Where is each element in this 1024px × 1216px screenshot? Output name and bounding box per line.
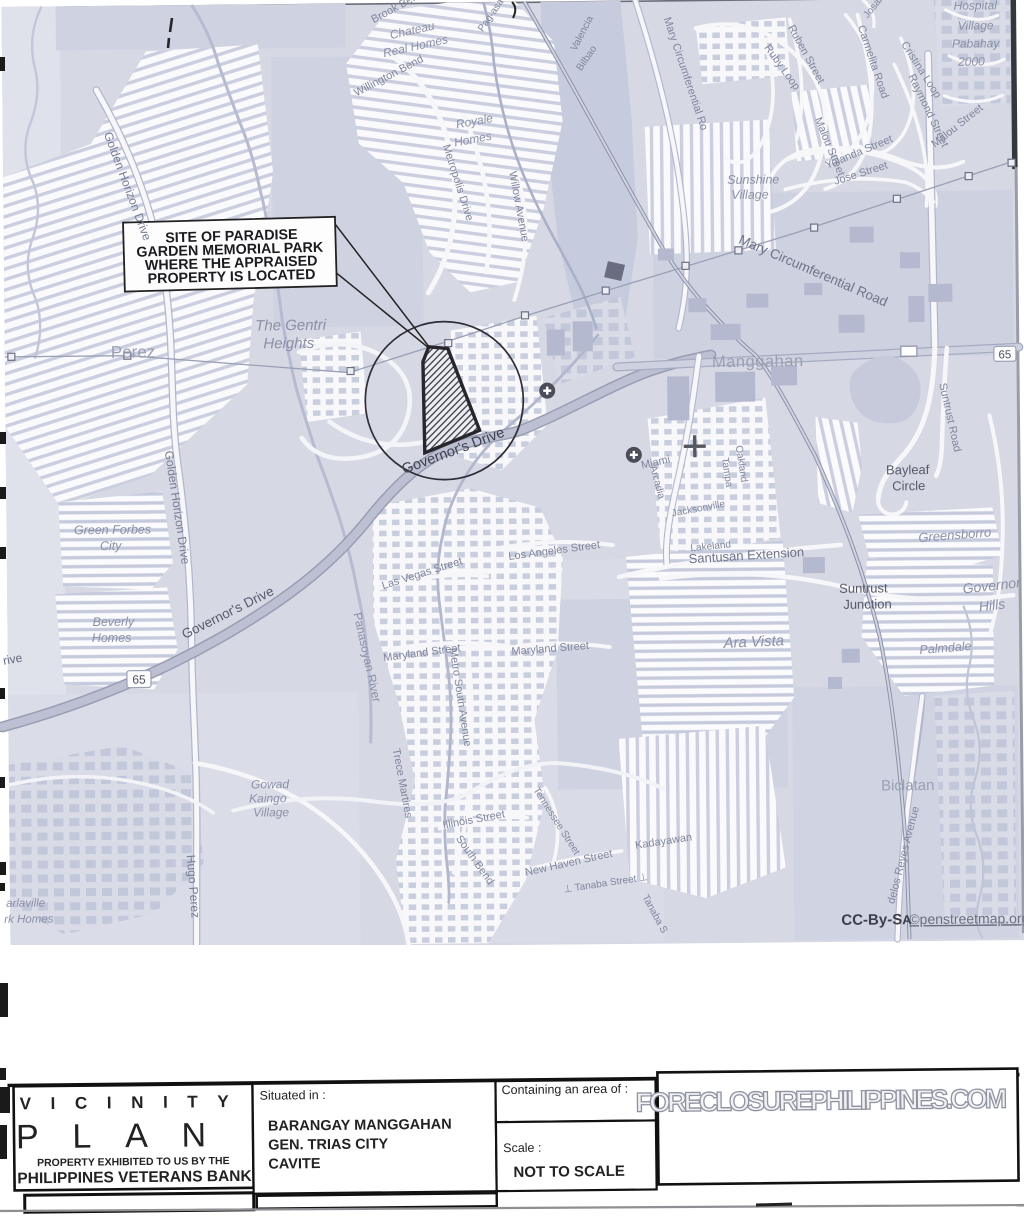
svg-text:Green Forbes: Green Forbes (74, 522, 151, 537)
svg-text:NOT TO SCALE: NOT TO SCALE (513, 1163, 625, 1181)
svg-text:Hospital: Hospital (953, 0, 997, 13)
svg-text:Homes: Homes (92, 631, 132, 645)
svg-text:Village: Village (731, 188, 768, 202)
svg-text:FORECLOSUREPHILIPPINES.COM: FORECLOSUREPHILIPPINES.COM (636, 1084, 1008, 1118)
svg-text:PROPERTY EXHIBITED TO US BY TH: PROPERTY EXHIBITED TO US BY THE (37, 1155, 230, 1169)
svg-text:65: 65 (132, 673, 146, 687)
svg-text:CAVITE: CAVITE (268, 1156, 321, 1173)
svg-text:Junction: Junction (843, 596, 892, 611)
svg-text:arlaville: arlaville (6, 898, 45, 910)
svg-text:Sunshine: Sunshine (727, 172, 779, 187)
svg-text:City: City (100, 539, 122, 553)
svg-text:Containing an area of :: Containing an area of : (501, 1082, 628, 1097)
svg-text:Circle: Circle (892, 478, 925, 493)
svg-text:Suntrust: Suntrust (839, 580, 888, 595)
svg-text:Situated in :: Situated in : (260, 1088, 326, 1103)
svg-text:Gowad: Gowad (251, 777, 289, 791)
svg-text:PHILIPPINES VETERANS BANK: PHILIPPINES VETERANS BANK (17, 1168, 252, 1188)
svg-text:Beverly: Beverly (93, 615, 136, 629)
svg-text:Heights: Heights (263, 335, 315, 352)
svg-text:Pabahay: Pabahay (952, 36, 1001, 50)
svg-text:Village: Village (958, 18, 994, 32)
svg-text:©penstreetmap.org: ©penstreetmap.org (909, 910, 1024, 927)
svg-text:Bayleaf: Bayleaf (886, 462, 930, 477)
svg-text:65: 65 (998, 349, 1011, 361)
svg-text:2000: 2000 (957, 54, 985, 68)
svg-text:BARANGAY MANGGAHAN: BARANGAY MANGGAHAN (268, 1117, 452, 1135)
svg-text:Village: Village (253, 805, 289, 819)
svg-text:rk Homes: rk Homes (4, 913, 54, 925)
svg-text:Biclatan: Biclatan (881, 777, 935, 795)
svg-text:PLAN: PLAN (16, 1116, 246, 1156)
svg-text:Perez: Perez (111, 342, 156, 361)
svg-text:The Gentri: The Gentri (255, 317, 327, 335)
svg-text:Ara Vista: Ara Vista (722, 632, 784, 652)
svg-text:Manggahan: Manggahan (712, 352, 804, 371)
svg-text:CC-By-SA: CC-By-SA (841, 911, 912, 929)
svg-text:Hills: Hills (978, 596, 1006, 615)
svg-text:GEN. TRIAS CITY: GEN. TRIAS CITY (268, 1136, 389, 1153)
svg-text:Scale :: Scale : (503, 1141, 541, 1155)
svg-text:VICINITY: VICINITY (20, 1092, 242, 1113)
svg-text:Kaingo: Kaingo (249, 791, 287, 805)
